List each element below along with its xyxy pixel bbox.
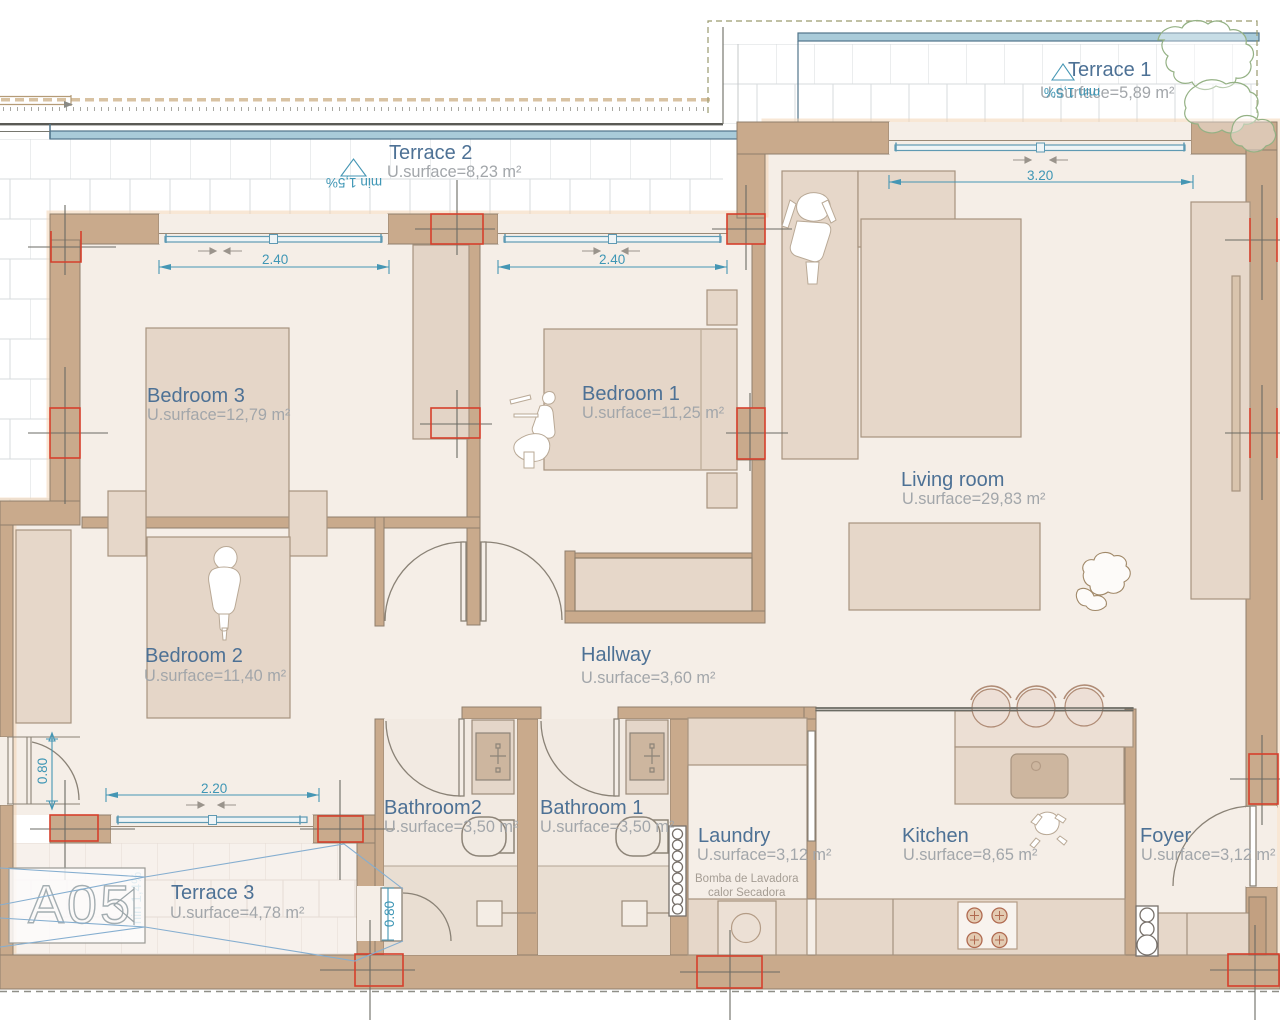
svg-text:U.surface=3,50 m²: U.surface=3,50 m² (540, 818, 675, 836)
svg-text:Hallway: Hallway (581, 644, 651, 666)
svg-text:Terrace 1: Terrace 1 (1068, 59, 1151, 81)
svg-text:0.80: 0.80 (35, 758, 50, 784)
svg-text:Bomba de Lavadora: Bomba de Lavadora (695, 873, 799, 885)
svg-text:U.surface=4,78 m²: U.surface=4,78 m² (170, 904, 305, 922)
svg-text:Bedroom 3: Bedroom 3 (147, 385, 245, 407)
svg-text:Laundry: Laundry (698, 825, 770, 847)
svg-text:U.surface=8,23 m²: U.surface=8,23 m² (387, 163, 522, 181)
svg-text:calor Secadora: calor Secadora (708, 887, 786, 899)
svg-text:min 1,5%: min 1,5% (326, 175, 382, 190)
svg-text:Bedroom 2: Bedroom 2 (145, 645, 243, 667)
svg-text:U.surface=29,83 m²: U.surface=29,83 m² (902, 490, 1046, 508)
svg-text:U.surface=3,12 m²: U.surface=3,12 m² (697, 846, 832, 864)
svg-text:U.surface=3,50 m²: U.surface=3,50 m² (384, 818, 519, 836)
svg-text:Bathroom2: Bathroom2 (384, 797, 482, 819)
svg-text:Kitchen: Kitchen (902, 825, 969, 847)
svg-text:U.surface=3,60 m²: U.surface=3,60 m² (581, 669, 716, 687)
svg-text:0.80: 0.80 (382, 901, 397, 927)
svg-text:Bathroom 1: Bathroom 1 (540, 797, 643, 819)
svg-text:2.20: 2.20 (201, 781, 227, 796)
svg-text:Terrace 3: Terrace 3 (171, 882, 254, 904)
svg-text:Terrace 2: Terrace 2 (389, 142, 472, 164)
svg-text:Living room: Living room (901, 469, 1004, 491)
svg-text:2.40: 2.40 (262, 252, 288, 267)
svg-text:min 1,5%: min 1,5% (1044, 85, 1100, 100)
svg-text:Bedroom 1: Bedroom 1 (582, 383, 680, 405)
svg-text:A05: A05 (28, 875, 133, 935)
svg-text:Foyer: Foyer (1140, 825, 1191, 847)
svg-text:2.40: 2.40 (599, 252, 625, 267)
svg-text:U.surface=11,40 m²: U.surface=11,40 m² (144, 667, 287, 685)
svg-text:U.surface=3,12 m²: U.surface=3,12 m² (1141, 846, 1276, 864)
svg-text:U.surface=11,25 m²: U.surface=11,25 m² (582, 404, 725, 422)
svg-text:3.20: 3.20 (1027, 168, 1053, 183)
svg-text:U.surface=12,79 m²: U.surface=12,79 m² (147, 406, 291, 424)
svg-text:U.surface=8,65 m²: U.surface=8,65 m² (903, 846, 1038, 864)
